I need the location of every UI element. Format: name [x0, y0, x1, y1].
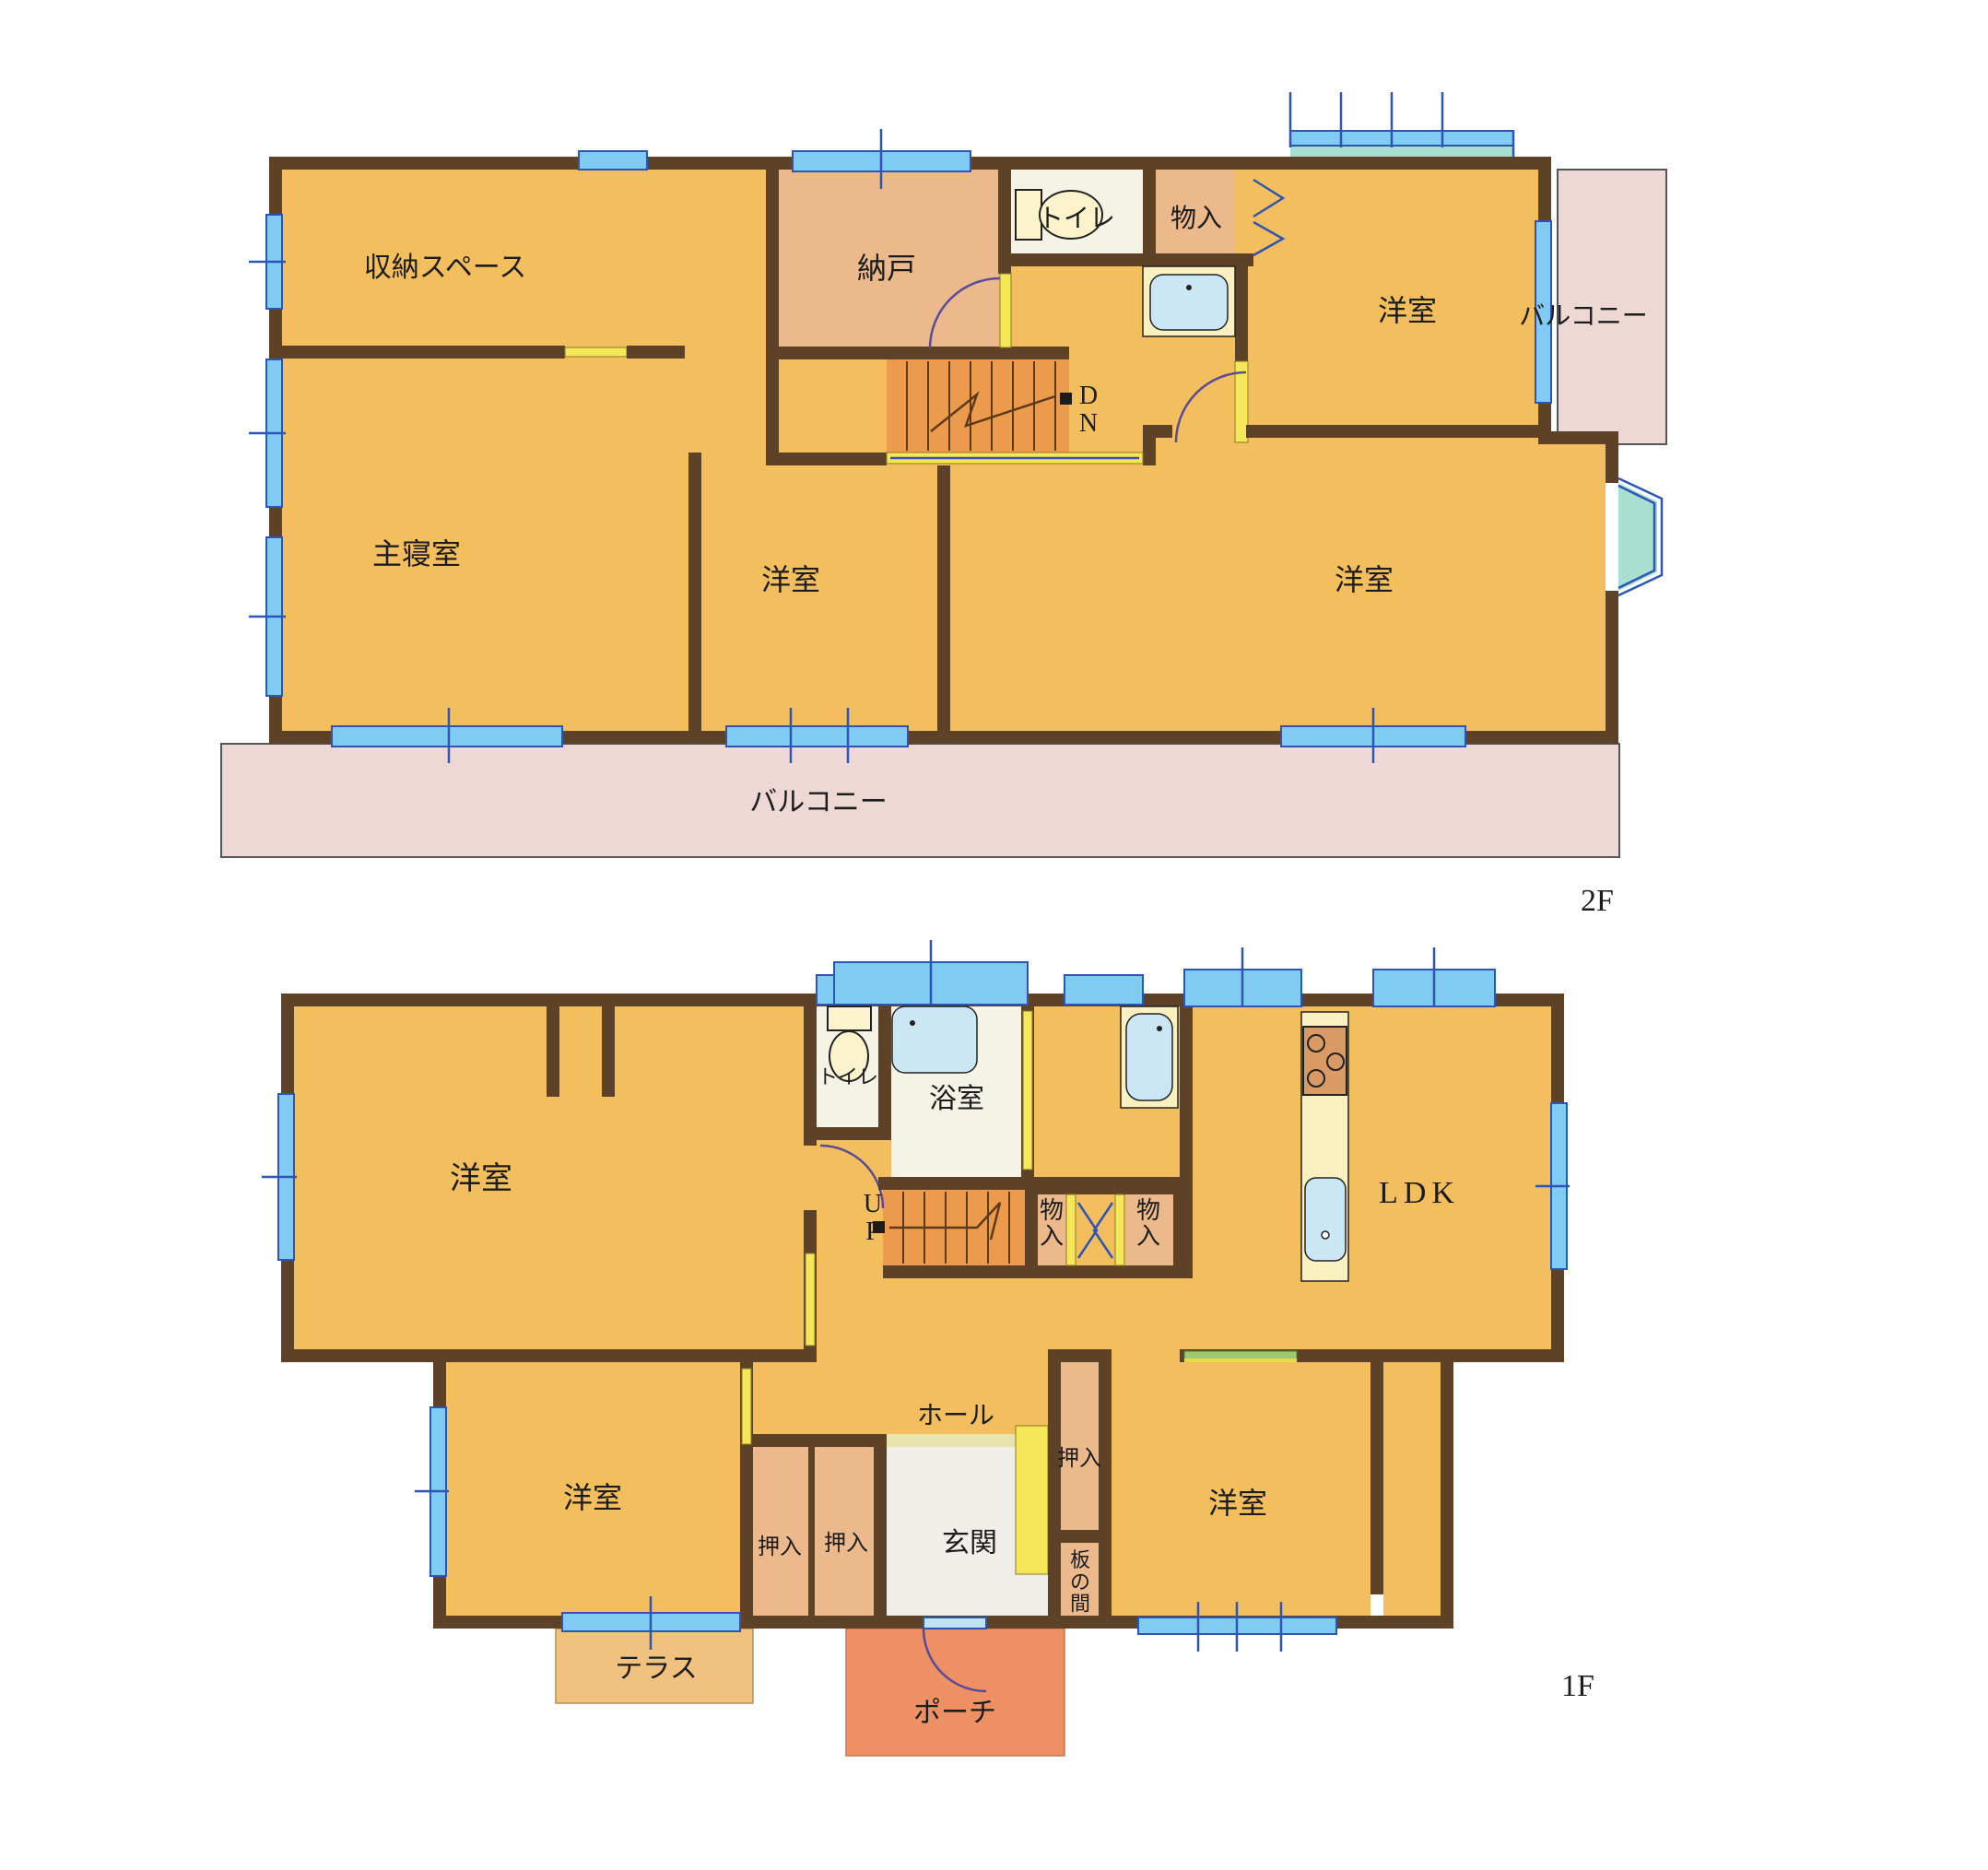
label-master-bedroom: 主寝室	[372, 537, 461, 570]
bay-window-2f	[1618, 483, 1657, 591]
wall	[282, 346, 565, 359]
floorplan-canvas: 収納スペース 納戸 トイレ 物入 洋室 バルコニー 主寝室 洋室 洋室 バルコニ…	[0, 0, 1988, 1870]
wall	[766, 453, 887, 465]
label-bedroom-main: 洋室	[450, 1161, 512, 1196]
wall	[688, 453, 701, 731]
washbasin-1f-icon	[1121, 1006, 1178, 1108]
wall	[602, 1006, 615, 1097]
label-toilet-2f: トイレ	[1038, 205, 1115, 233]
label-bedroom-se: 洋室	[1208, 1487, 1267, 1520]
room-oshiire-a	[753, 1447, 808, 1616]
wall	[1011, 347, 1069, 359]
label-oshiire-b: 押入	[824, 1531, 868, 1556]
wall	[1441, 1362, 1453, 1629]
wall	[1235, 266, 1248, 361]
label-oshiire-c: 押入	[1057, 1446, 1101, 1471]
wall	[1143, 170, 1156, 253]
wall	[1606, 431, 1618, 483]
label-bedroom-br: 洋室	[1335, 563, 1394, 596]
wall	[937, 465, 950, 731]
wall	[998, 253, 1156, 266]
label-floor-1f: 1F	[1561, 1669, 1594, 1703]
wall	[1606, 591, 1618, 744]
room-oshiire-c	[1061, 1362, 1099, 1530]
label-bedroom-tr: 洋室	[1378, 294, 1437, 327]
label-floor-2f: 2F	[1581, 884, 1614, 918]
wall	[627, 346, 685, 359]
door-monoire-b	[1115, 1194, 1124, 1265]
label-itanoma: 板の間	[1070, 1548, 1090, 1616]
floorplan-page: 収納スペース 納戸 トイレ 物入 洋室 バルコニー 主寝室 洋室 洋室 バルコニ…	[0, 0, 1988, 1870]
accordion-door-bedroom-sw	[742, 1369, 751, 1444]
label-bedroom-center: 洋室	[761, 563, 820, 596]
label-porch: ポーチ	[913, 1698, 996, 1728]
bathtub-icon	[892, 1006, 977, 1073]
floor-plan-2f: 収納スペース 納戸 トイレ 物入 洋室 バルコニー 主寝室 洋室 洋室 バルコニ…	[221, 92, 1666, 918]
label-ldk: LDK	[1379, 1176, 1460, 1210]
label-genkan: 玄関	[942, 1528, 997, 1558]
label-hall: ホール	[917, 1402, 994, 1430]
wall	[1143, 425, 1156, 465]
wall	[779, 347, 1011, 359]
label-monoire-1f-a: 物入	[1040, 1197, 1064, 1250]
label-stairs-up: UP	[864, 1190, 882, 1246]
wall	[1025, 1190, 1038, 1278]
label-monoire-1f-b: 物入	[1136, 1197, 1160, 1250]
floor-gap	[817, 1349, 1048, 1362]
balcony-bottom-2f	[221, 744, 1619, 857]
wall	[804, 1006, 817, 1146]
wall	[1038, 1265, 1185, 1278]
wall	[804, 1127, 891, 1140]
label-bedroom-sw: 洋室	[563, 1481, 622, 1514]
kitchen-counter-icon	[1301, 1012, 1348, 1281]
label-balcony-right: バルコニー	[1519, 302, 1647, 331]
wall	[808, 1447, 815, 1616]
floor-plan-1f: 洋室 トイレ 浴室 LDK 物入 物入 ホール 玄関 押入 押入 押入 板の間 …	[262, 940, 1594, 1756]
label-bath: 浴室	[929, 1084, 984, 1114]
label-toilet-1f: トイレ	[818, 1065, 878, 1088]
door-monoire-a	[1066, 1194, 1076, 1265]
wall	[1048, 1362, 1061, 1629]
floor-base-2f-right	[1538, 444, 1606, 731]
porch-1f	[846, 1629, 1065, 1756]
wall	[753, 1434, 887, 1447]
wall	[1048, 1530, 1112, 1543]
closet-strip-se	[1383, 1362, 1441, 1616]
wall	[878, 1006, 891, 1140]
washbasin-2f-icon	[1143, 266, 1235, 336]
label-storage-space: 収納スペース	[364, 253, 526, 283]
door-bedroom-main	[806, 1253, 815, 1346]
sliding-door-bath	[1023, 1011, 1032, 1170]
door-nando	[1000, 274, 1011, 347]
label-balcony-bottom: バルコニー	[749, 787, 887, 817]
wall	[1038, 1183, 1185, 1194]
wall	[1246, 425, 1551, 438]
shoe-cabinet	[1016, 1426, 1048, 1574]
wall	[1099, 1349, 1112, 1616]
floor-gap	[1112, 1349, 1180, 1362]
label-nando: 納戸	[857, 252, 916, 285]
wall	[1048, 1349, 1099, 1362]
label-stairs-dn: DN	[1079, 382, 1098, 438]
wall	[281, 1349, 817, 1362]
wall	[1370, 1362, 1383, 1594]
wall	[547, 1006, 559, 1097]
wall	[874, 1434, 887, 1629]
label-terrace: テラス	[615, 1653, 697, 1684]
stairs-2f	[887, 359, 1069, 453]
wall	[1180, 1006, 1193, 1278]
wall	[766, 170, 779, 465]
label-monoire-2f: 物入	[1170, 204, 1222, 233]
label-oshiire-a: 押入	[758, 1535, 802, 1559]
wall	[1143, 253, 1253, 266]
entrance-door-sill	[923, 1617, 986, 1629]
wall	[883, 1265, 1038, 1278]
door-shuno	[565, 347, 627, 357]
